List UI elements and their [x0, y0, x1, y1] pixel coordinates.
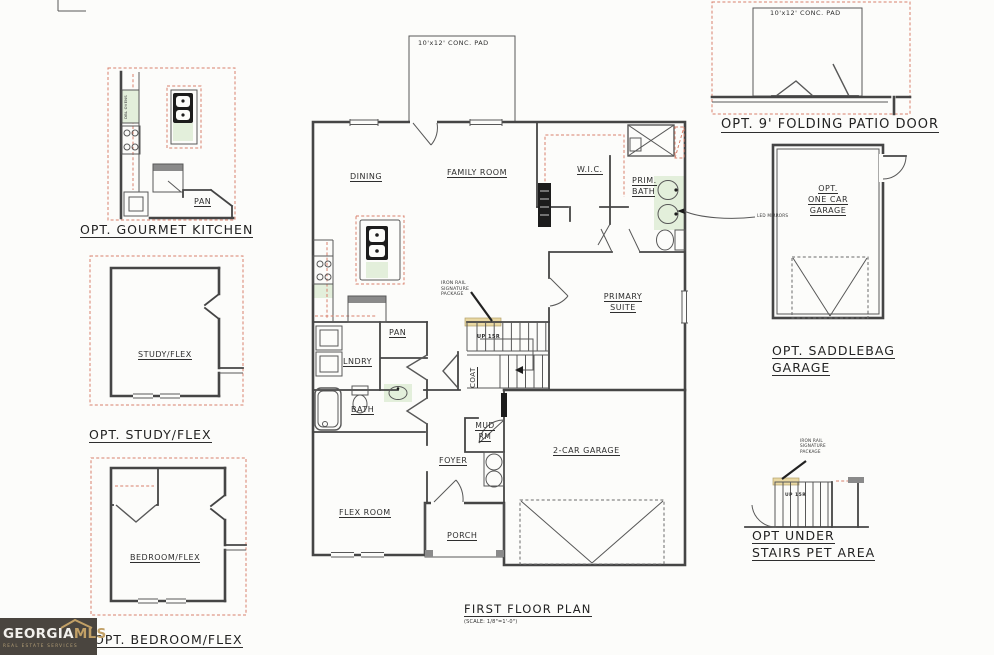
- pet-area-iron-rail-callout: IRON RAIL SIGNATURE PACKAGE: [800, 438, 826, 454]
- room-label-garage: 2-CAR GARAGE: [553, 446, 620, 456]
- main-plan: [313, 36, 755, 565]
- inset-pet-area: [745, 461, 868, 527]
- room-label-dining: DINING: [350, 172, 382, 182]
- stairs-up-label: UP 15R: [477, 334, 500, 340]
- inset-bedroom-room-label: BEDROOM/FLEX: [130, 553, 200, 563]
- pet-area-up-label: UP 15R: [785, 493, 806, 498]
- logo-roof-icon: [59, 619, 95, 629]
- room-label-family-room: FAMILY ROOM: [447, 168, 507, 178]
- room-label-flex-room: FLEX ROOM: [339, 508, 391, 518]
- caption-pet-area: OPT UNDER STAIRS PET AREA: [752, 528, 875, 562]
- plan-scale-note: (SCALE: 1/8"=1'-0"): [464, 619, 517, 625]
- caption-saddlebag-garage: OPT. SADDLEBAG GARAGE: [772, 343, 895, 377]
- inset-kitchen-pan-label: PAN: [194, 197, 211, 207]
- led-mirrors-callout: LED MIRRORS: [757, 213, 788, 218]
- inset-patio-door: [712, 2, 910, 114]
- inset-gourmet-kitchen: [108, 68, 235, 220]
- inset-study-flex: [90, 256, 243, 405]
- floor-plan-sheet: 10'x12' CONC. PAD DINING FAMILY ROOM W.I…: [0, 0, 994, 655]
- logo-tagline: REAL ESTATE SERVICES: [3, 643, 97, 648]
- room-label-foyer: FOYER: [439, 456, 467, 466]
- room-label-lndry: LNDRY: [343, 357, 372, 367]
- inset-saddlebag-room-label: OPT. ONE CAR GARAGE: [796, 184, 860, 217]
- inset-saddlebag-garage: [773, 145, 906, 318]
- room-label-mud-rm: MUD RM: [470, 421, 500, 443]
- room-label-pan: PAN: [389, 328, 406, 338]
- conc-pad-label: 10'x12' CONC. PAD: [418, 39, 489, 47]
- inset-kitchen-dbl-ovens-label: DBL OVENS: [124, 95, 129, 119]
- room-label-primary-suite: PRIMARY SUITE: [590, 292, 656, 314]
- plan-title: FIRST FLOOR PLAN: [464, 602, 592, 617]
- inset-bedroom-flex: [91, 458, 246, 615]
- caption-patio-door: OPT. 9' FOLDING PATIO DOOR: [721, 117, 939, 133]
- room-label-bath: BATH: [351, 405, 374, 415]
- room-label-coat: COAT: [469, 367, 478, 388]
- georgiamls-logo: GEORGIAMLS REAL ESTATE SERVICES: [0, 618, 97, 655]
- sheet-corner-mark: [58, 0, 86, 11]
- caption-bedroom-flex: OPT. BEDROOM/FLEX: [94, 632, 243, 648]
- inset-patio-pad-label: 10'x12' CONC. PAD: [770, 9, 841, 17]
- room-label-porch: PORCH: [447, 531, 477, 541]
- caption-study-flex: OPT. STUDY/FLEX: [89, 427, 212, 443]
- inset-study-room-label: STUDY/FLEX: [138, 350, 192, 360]
- room-label-prim-bath: PRIM. BATH: [632, 176, 657, 197]
- room-label-wic: W.I.C.: [577, 165, 603, 175]
- caption-gourmet-kitchen: OPT. GOURMET KITCHEN: [80, 222, 253, 238]
- iron-rail-callout: IRON RAIL SIGNATURE PACKAGE: [441, 281, 469, 298]
